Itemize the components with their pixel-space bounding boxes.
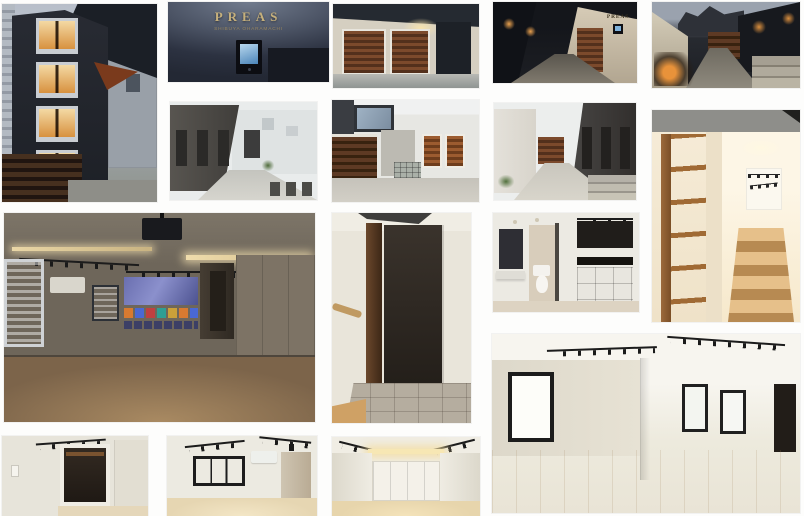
- wood-floor: [4, 355, 315, 422]
- projected-screen: [124, 277, 198, 329]
- dark-wall-block: [268, 48, 329, 82]
- window-with-blinds: [4, 259, 44, 347]
- nook-door: [210, 271, 226, 331]
- upper-building: [332, 100, 354, 136]
- sconce-light: [752, 20, 766, 34]
- downlight: [535, 218, 539, 222]
- air-conditioner: [251, 451, 277, 463]
- bathroom-mirror: [499, 229, 523, 269]
- dark-doorway: [774, 384, 796, 452]
- frosted-window: [682, 384, 708, 432]
- wooden-door: [390, 29, 430, 75]
- wood-slat-fence: [332, 134, 377, 181]
- preas-wall-sign-text: PREAS: [605, 14, 632, 19]
- preas-wall-sign: PREAS: [603, 14, 633, 42]
- uplit-planting: [654, 52, 698, 86]
- photo-preas-sign: PREAS SHIBUYA OHARAMACHI: [168, 2, 329, 82]
- dark-pavers: [270, 182, 312, 196]
- wood-floor: [492, 450, 800, 513]
- track-light-rail: [748, 174, 780, 178]
- photo-courtyard-day: [332, 100, 479, 202]
- wooden-gate: [538, 137, 564, 164]
- preas-sign-text: PREAS: [168, 9, 329, 25]
- screen-hero-image: [124, 277, 198, 305]
- toilet-bowl: [536, 275, 548, 293]
- open-cubby-shelves: [577, 267, 633, 301]
- track-light-rail: [547, 346, 657, 357]
- dark-accent-wall: [384, 225, 442, 383]
- track-light-rail: [667, 336, 785, 351]
- photo-room-closet: [2, 436, 148, 516]
- screen-thumbnails: [124, 321, 198, 329]
- sconce-light: [503, 18, 515, 30]
- lit-window: [36, 62, 78, 98]
- lit-window: [36, 106, 78, 142]
- wooden-shutter: [422, 134, 442, 168]
- intercom-box: [613, 24, 623, 34]
- track-light-head: [289, 444, 294, 451]
- photo-bath-kitchen: [493, 213, 639, 312]
- intercom-screen: [240, 44, 258, 64]
- black-counter: [577, 257, 633, 265]
- open-wood-shelves: [671, 134, 706, 322]
- black-upper-cabinets: [577, 221, 633, 248]
- closet-rod: [66, 452, 104, 456]
- wall-pillar: [114, 440, 148, 516]
- dark-panel: [436, 22, 471, 80]
- ceiling-light-glow: [738, 138, 784, 158]
- photo-entry-hall: [332, 213, 471, 423]
- ground: [68, 180, 157, 202]
- paneled-wall: [236, 255, 315, 357]
- air-conditioner: [50, 277, 85, 293]
- concrete-steps: [752, 56, 800, 88]
- track-light-rail: [259, 436, 311, 448]
- concrete-ground: [332, 178, 479, 202]
- photo-alley-day-2: [494, 103, 636, 200]
- ceiling-projector: [142, 218, 182, 240]
- preas-sign-subtitle: SHIBUYA OHARAMACHI: [184, 27, 313, 32]
- photo-staircase-shelves: [652, 110, 800, 322]
- intercom-screen: [615, 26, 621, 31]
- photo-room-window: [167, 436, 317, 516]
- light-switch: [12, 466, 18, 476]
- washstand: [496, 271, 525, 279]
- intercom-button: [248, 68, 251, 71]
- photo-living-room-wide: [492, 334, 800, 513]
- photo-room-double-doors: [332, 437, 480, 516]
- upper-window: [354, 105, 394, 132]
- track-light-rail: [750, 183, 778, 190]
- photo-alley-night: PREAS: [493, 2, 637, 83]
- wooden-step: [332, 399, 366, 423]
- ceiling-edge: [652, 110, 800, 132]
- black-frame-window: [193, 456, 245, 486]
- back-window: [262, 118, 274, 130]
- back-window: [286, 126, 298, 136]
- wall-corner: [442, 225, 444, 385]
- sconce-light: [525, 26, 536, 37]
- stair-wall: [706, 132, 722, 322]
- photo-courtyard-night: [652, 2, 800, 88]
- sconce-light: [782, 12, 795, 25]
- wooden-shutter: [445, 134, 465, 168]
- concrete-floor: [333, 74, 479, 88]
- glass-door-edge: [555, 223, 559, 305]
- handrail: [332, 303, 362, 319]
- recessed-panels: [582, 127, 632, 169]
- wood-floor: [167, 498, 317, 516]
- black-frame-window: [508, 372, 554, 442]
- photo-building-night: [2, 4, 157, 202]
- photo-projector-room: [4, 213, 315, 422]
- concrete-steps: [588, 175, 636, 200]
- lit-window: [36, 18, 78, 54]
- dark-doorway: [244, 130, 260, 158]
- cove-light: [368, 449, 444, 454]
- wooden-door: [342, 29, 386, 75]
- plant: [498, 175, 514, 188]
- shelf-side-panel: [661, 134, 671, 322]
- recessed-doors: [176, 130, 234, 166]
- side-wall: [440, 453, 480, 507]
- white-double-doors: [372, 461, 440, 501]
- side-alcove: [281, 452, 311, 498]
- window-with-blinds: [92, 285, 119, 321]
- side-wall: [332, 453, 372, 507]
- downlight: [513, 220, 517, 224]
- plant: [262, 160, 274, 171]
- photo-collage-page: PREAS SHIBUYA OHARAMACHI PREAS: [0, 0, 804, 516]
- wood-floor: [58, 506, 148, 516]
- frosted-window: [720, 390, 746, 434]
- cove-light: [12, 247, 152, 251]
- wood-post: [366, 223, 382, 383]
- photo-alley-day: [170, 102, 317, 200]
- screen-app-tiles: [124, 308, 198, 318]
- upper-floor-view: [746, 168, 782, 210]
- photo-entrance-twilight: [333, 4, 479, 88]
- track-light-rail: [185, 440, 245, 453]
- video-intercom: [236, 40, 262, 74]
- wood-floor: [332, 501, 480, 516]
- wooden-stairs: [728, 228, 794, 322]
- floor: [493, 301, 639, 312]
